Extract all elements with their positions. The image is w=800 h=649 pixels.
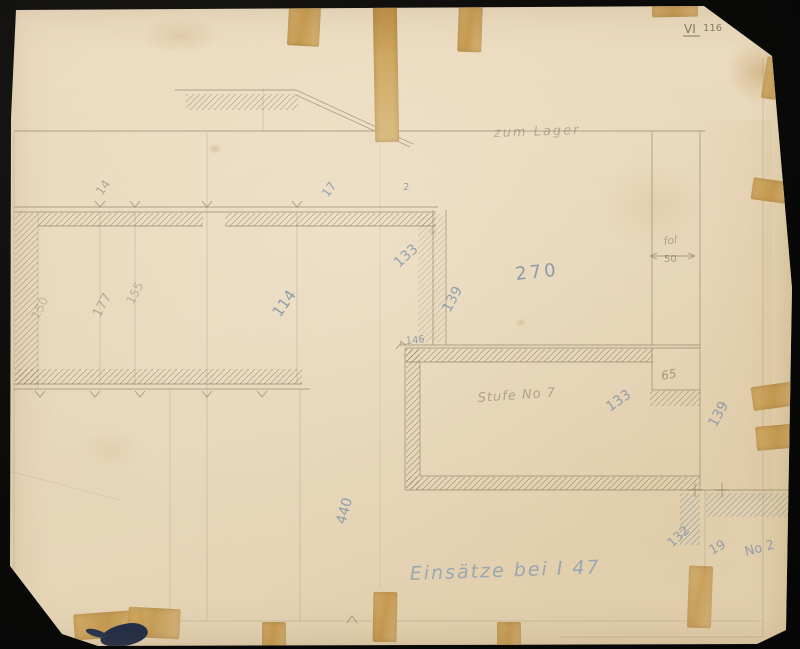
tape-strip-top-right [652,5,698,18]
tape-patch-corner [761,56,793,102]
dim-65-label: 65 [660,367,677,383]
dim-no2-label: No 2 [743,538,776,560]
dimension-arrows [35,201,729,623]
dim-270-label: 270 [514,260,559,285]
dim-133-room-label: 133 [603,387,634,415]
paper-sheet: VI 116 zum Lager Stufe No 7 fol 50 65 14… [0,0,800,649]
archive-mark-number: 116 [703,23,722,34]
dim-14-label: 14 [93,177,113,198]
dim-19-label: 19 [707,538,729,559]
fol-note-label: fol [663,233,678,248]
tape-strip-top-long [373,4,399,142]
dim-114-label: 114 [269,287,300,321]
dim-133-left-label: 133 [391,241,422,271]
dim-50-label: 50 [664,254,677,265]
dim-440-label: 440 [333,496,356,526]
tape-strip-top-2 [457,6,483,53]
floor-plan-drawing: VI 116 zum Lager Stufe No 7 fol 50 65 14… [0,0,800,649]
wall-hatching [15,94,790,545]
archive-mark-roman: VI [684,22,696,36]
photo-backdrop: VI 116 zum Lager Stufe No 7 fol 50 65 14… [0,0,800,649]
dim-155-label: 155 [123,280,146,307]
tape-strip-bottom-3 [497,622,521,649]
tape-strip-top-1 [287,5,321,47]
dim-146-label: 146 [405,334,425,347]
dim-2-label: 2 [403,182,409,193]
room-note-label: Stufe No 7 [477,386,556,406]
dim-17-label: 17 [319,179,339,200]
faint-pencil-lines [14,58,763,637]
tape-strip-bottom-1 [262,622,286,649]
top-note-label: zum Lager [493,123,581,141]
tape-strip-right-2 [751,381,800,411]
dim-177-label: 177 [90,291,115,320]
caption-text: Einsätze bei I 47 [409,556,601,585]
dim-139-lower-label: 139 [705,399,732,430]
tape-strip-right-3 [755,423,800,451]
tape-strip-bottom-right [687,566,713,629]
tape-strip-bottom-2 [373,592,398,642]
